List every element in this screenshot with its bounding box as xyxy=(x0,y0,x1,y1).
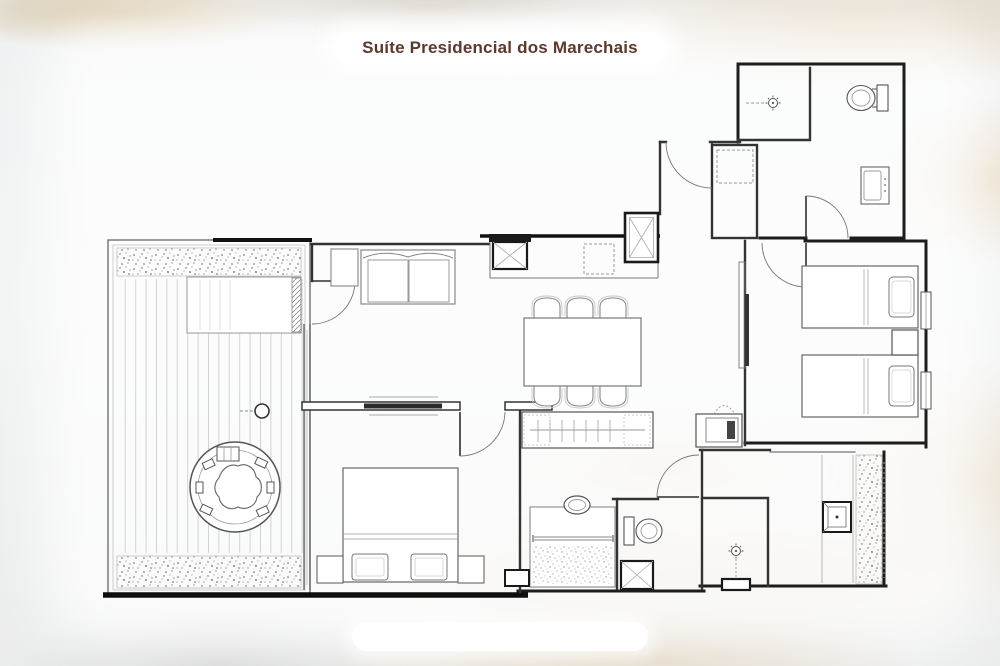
shower-head-2 xyxy=(729,544,744,559)
wall-cabinet xyxy=(505,570,529,586)
kitchen-pier xyxy=(489,234,531,242)
vertical-garden xyxy=(856,455,882,584)
bathroom-bottom-right xyxy=(722,455,884,590)
king-bed xyxy=(343,468,458,582)
minibar-niche xyxy=(696,406,742,448)
terrace xyxy=(108,240,310,595)
living-room xyxy=(302,249,552,415)
title-pill: Suíte Presidencial dos Marechais xyxy=(335,32,665,64)
twin-bed-1 xyxy=(802,266,918,328)
jacuzzi-steps xyxy=(217,447,239,461)
bathroom-bottom-center xyxy=(505,496,662,589)
round-jacuzzi xyxy=(190,442,280,532)
window-1 xyxy=(921,292,931,329)
service-shaft xyxy=(625,213,658,262)
shower-head xyxy=(766,96,781,111)
wardrobe xyxy=(522,412,653,448)
refrigerator xyxy=(584,244,614,274)
sofa xyxy=(361,250,455,304)
decorative-gravel xyxy=(533,546,612,584)
side-table xyxy=(331,249,358,286)
luggage-rack xyxy=(717,150,753,183)
bedside-table xyxy=(892,330,918,355)
tv-partition xyxy=(302,397,552,415)
carousel-pill xyxy=(352,622,648,651)
window-2 xyxy=(921,372,931,409)
kitchen-sink-unit xyxy=(493,242,527,269)
dining-table xyxy=(524,318,641,386)
vanity-basin xyxy=(861,167,889,204)
toilet-2 xyxy=(624,517,662,545)
twin-bed-2 xyxy=(802,355,918,417)
planter-strip-bottom xyxy=(117,556,301,588)
kitchenette xyxy=(489,213,658,278)
master-bedroom xyxy=(317,468,484,583)
shower-threshold xyxy=(722,579,750,590)
toilet xyxy=(847,85,888,111)
dining-area xyxy=(524,296,641,408)
shower-drain-box xyxy=(621,561,653,589)
floor-plan xyxy=(0,0,1000,666)
nightstand-left xyxy=(317,556,343,583)
page-title: Suíte Presidencial dos Marechais xyxy=(362,38,638,57)
bathroom-top-right xyxy=(746,85,889,204)
square-basin xyxy=(823,502,851,532)
planter-strip-top xyxy=(117,248,301,276)
twin-bedroom xyxy=(739,262,931,417)
screenshot-canvas: Suíte Presidencial dos Marechais xyxy=(0,0,1000,666)
nightstand-right xyxy=(458,556,484,583)
terrace-platform xyxy=(187,277,301,333)
